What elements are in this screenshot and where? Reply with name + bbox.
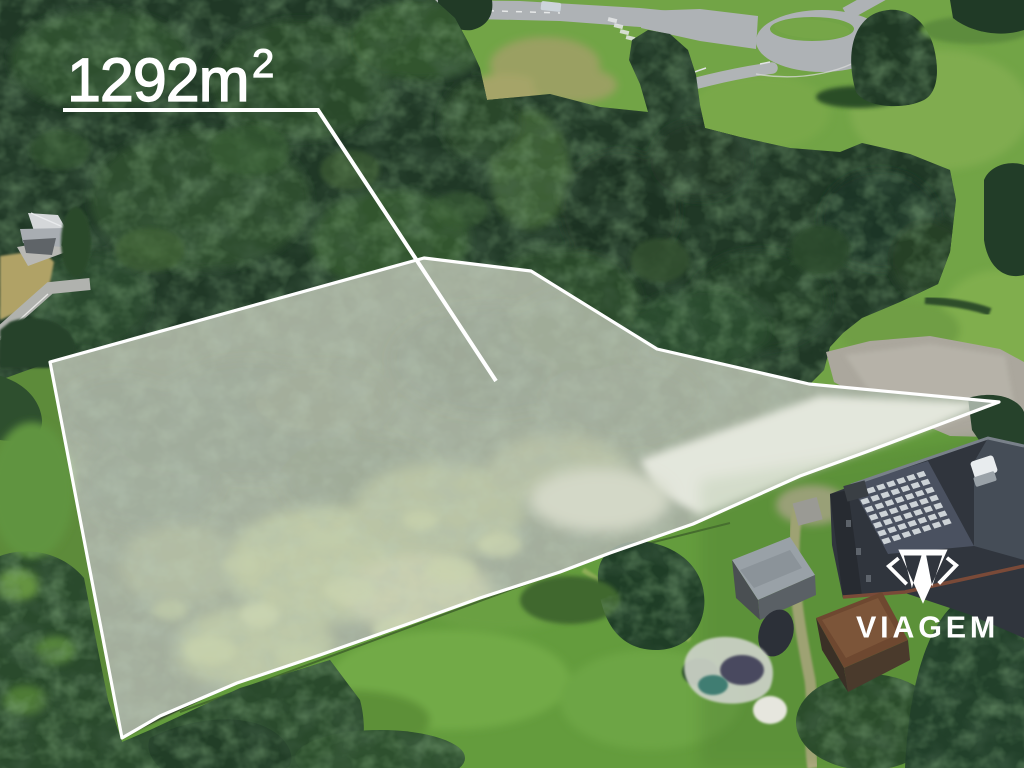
svg-text:VIAGEM: VIAGEM	[856, 611, 999, 645]
svg-text:2: 2	[252, 42, 274, 86]
svg-text:1292m: 1292m	[67, 46, 249, 114]
